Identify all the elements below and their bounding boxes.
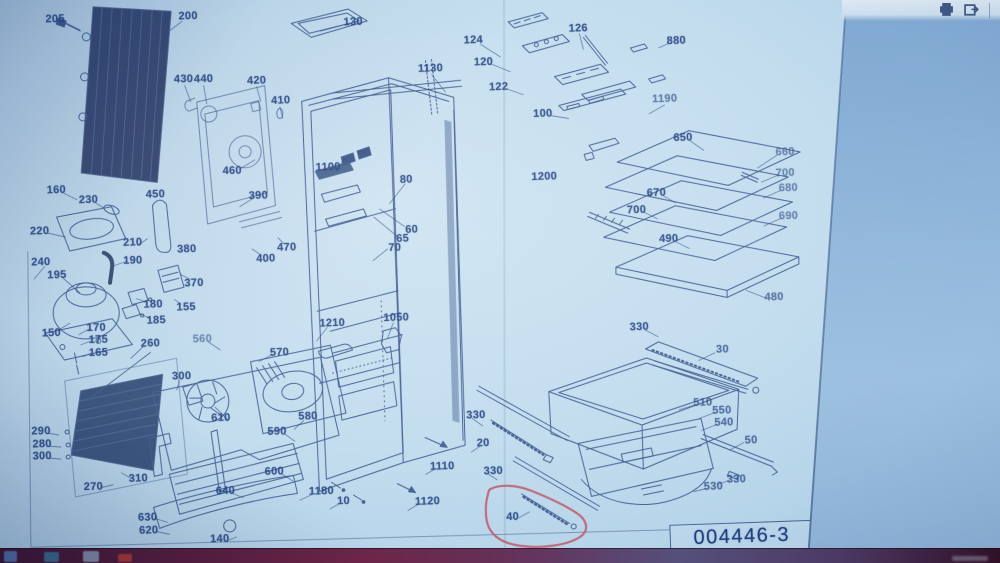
toolbar-separator xyxy=(989,3,990,18)
taskbar xyxy=(0,548,1000,563)
taskbar-app-icon-4[interactable] xyxy=(118,554,132,562)
part-label: 490 xyxy=(659,233,679,246)
part-label: 126 xyxy=(568,22,588,35)
export-icon[interactable] xyxy=(964,3,979,17)
part-label: 400 xyxy=(256,252,276,265)
part-label: 200 xyxy=(178,10,198,23)
part-label: 540 xyxy=(714,416,734,429)
part-label: 450 xyxy=(146,188,166,201)
part-label: 380 xyxy=(177,243,197,256)
part-label: 150 xyxy=(42,327,62,340)
part-label: 600 xyxy=(265,465,285,478)
part-label: 165 xyxy=(89,346,109,359)
part-label: 1120 xyxy=(415,495,440,508)
part-label: 80 xyxy=(400,173,413,185)
part-label: 50 xyxy=(745,434,758,446)
part-label: 610 xyxy=(211,412,231,425)
part-label: 460 xyxy=(222,165,242,178)
part-label: 1130 xyxy=(418,62,443,75)
taskbar-clock xyxy=(952,556,988,561)
part-labels: 2052001301130430440420410460124120122126… xyxy=(0,0,1000,563)
viewer-toolbar xyxy=(842,0,1000,21)
part-label: 620 xyxy=(139,524,159,537)
part-label: 122 xyxy=(489,81,509,94)
part-label: 310 xyxy=(129,472,149,485)
part-label: 175 xyxy=(89,333,109,346)
part-label: 160 xyxy=(47,184,67,197)
taskbar-app-icon-2[interactable] xyxy=(44,552,59,562)
taskbar-app-icon-1[interactable] xyxy=(4,551,17,562)
part-label: 210 xyxy=(123,236,143,249)
part-label: 570 xyxy=(270,346,290,359)
part-label: 1050 xyxy=(383,311,409,324)
part-label: 124 xyxy=(463,34,483,47)
part-label: 650 xyxy=(673,131,693,144)
part-label: 1180 xyxy=(309,485,334,498)
part-label: 470 xyxy=(277,241,297,254)
part-label: 330 xyxy=(727,473,747,486)
part-label: 480 xyxy=(764,291,784,304)
part-label: 10 xyxy=(337,495,350,507)
part-label: 510 xyxy=(693,396,713,409)
part-label: 530 xyxy=(704,480,724,493)
document-page: 2052001301130430440420410460124120122126… xyxy=(0,0,1000,563)
part-label: 880 xyxy=(667,34,687,47)
photographed-screen: 2052001301130430440420410460124120122126… xyxy=(0,0,1000,563)
part-label: 300 xyxy=(172,370,192,383)
part-label: 590 xyxy=(267,425,287,438)
part-label: 40 xyxy=(506,511,519,523)
part-label: 660 xyxy=(775,146,795,159)
part-label: 185 xyxy=(146,314,166,327)
part-label: 410 xyxy=(271,94,291,107)
part-label: 640 xyxy=(216,485,236,498)
part-label: 170 xyxy=(86,322,106,335)
part-label: 240 xyxy=(31,256,51,269)
part-label: 100 xyxy=(533,107,553,120)
part-label: 300 xyxy=(32,450,52,463)
part-label: 330 xyxy=(484,465,504,478)
part-label: 220 xyxy=(30,225,50,238)
part-label: 330 xyxy=(630,321,650,334)
part-label: 1190 xyxy=(652,92,677,105)
part-label: 390 xyxy=(249,189,269,202)
part-label: 580 xyxy=(298,410,318,423)
part-label: 30 xyxy=(716,343,729,355)
part-label: 205 xyxy=(45,13,65,26)
part-label: 630 xyxy=(138,511,158,524)
part-label: 1200 xyxy=(531,170,557,183)
taskbar-app-icon-3[interactable] xyxy=(83,551,99,562)
part-label: 330 xyxy=(466,409,486,422)
part-label: 290 xyxy=(31,425,51,438)
part-label: 680 xyxy=(779,182,799,195)
part-label: 670 xyxy=(647,187,667,200)
part-label: 1100 xyxy=(315,161,340,174)
part-label: 260 xyxy=(141,337,161,350)
part-label: 280 xyxy=(32,438,52,451)
part-label: 700 xyxy=(627,204,647,217)
part-label: 130 xyxy=(343,16,363,29)
part-label: 230 xyxy=(79,194,99,207)
part-label: 140 xyxy=(210,533,230,546)
part-label: 190 xyxy=(123,254,143,267)
print-icon[interactable] xyxy=(939,3,954,17)
part-label: 370 xyxy=(184,277,204,290)
part-label: 120 xyxy=(474,56,494,69)
part-label: 20 xyxy=(477,437,490,449)
part-label: 690 xyxy=(779,210,799,223)
drawing-number: 004446-3 xyxy=(693,524,790,550)
part-label: 440 xyxy=(194,73,214,86)
part-label: 1110 xyxy=(430,460,455,473)
part-label: 430 xyxy=(174,73,194,86)
part-label: 270 xyxy=(84,481,104,494)
part-label: 70 xyxy=(388,242,401,254)
part-label: 550 xyxy=(712,404,732,417)
part-label: 1210 xyxy=(319,317,345,330)
part-label: 560 xyxy=(193,333,213,346)
part-label: 195 xyxy=(47,269,67,282)
part-label: 155 xyxy=(176,301,196,314)
part-label: 180 xyxy=(143,298,163,311)
part-label: 700 xyxy=(775,167,795,180)
part-label: 420 xyxy=(247,74,267,87)
